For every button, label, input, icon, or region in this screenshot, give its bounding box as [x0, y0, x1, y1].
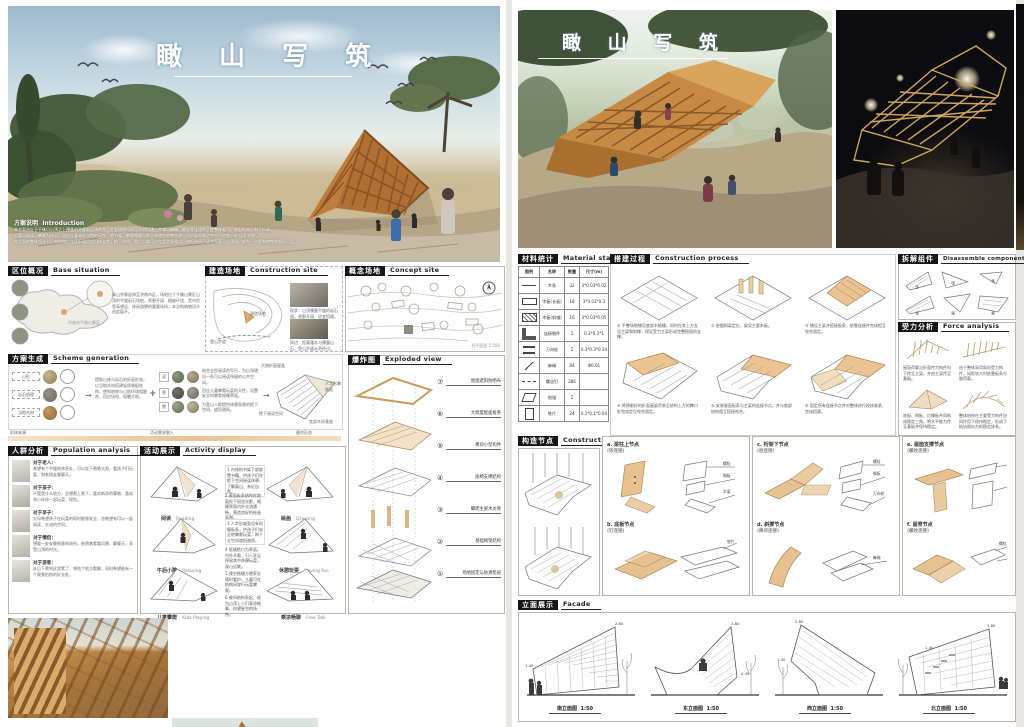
force-en: Force analysis [941, 322, 1009, 332]
need-text: 结合全民阅读的号召，为山顶增设一处可以阅读停留的公共空间。 [202, 368, 258, 385]
elevation-north: 2.801.40 [895, 617, 1011, 701]
svg-text:木梁: 木梁 [723, 489, 731, 494]
process-diagram-4 [617, 351, 701, 401]
process-header: 搭建过程 Construction process [610, 254, 895, 264]
activity-diagram-climb [147, 565, 221, 603]
final-note: 大跨折面屋盖 [261, 363, 285, 369]
activity-diagram-reading [147, 463, 221, 503]
node-zh: 构造节点 [518, 436, 558, 446]
population-text: 想要一处安静惬意的场所，依偎着看看风景、聊聊天，享受山顶的时光。 [33, 541, 134, 553]
force-text: 整体结构在主要受力构件协同作用下保持稳定，形成了抵抗侧向力的稳定体系。 [959, 413, 1009, 430]
need-tag: 读 [159, 372, 169, 382]
construction-site-en: Construction site [248, 266, 328, 276]
concept-site-en: Concept site [388, 266, 449, 276]
title-underline-right [538, 58, 728, 59]
activity-zh: 活动展示 [140, 446, 180, 456]
arrow-icon: → [263, 391, 270, 400]
svg-text:2.80: 2.80 [731, 621, 740, 626]
force-text: 由于整体采用斜向受力构件，间距较大时依靠板条分散荷载。 [959, 365, 1009, 382]
disassemble-parts [902, 268, 1012, 316]
svg-text:1.40: 1.40 [925, 645, 934, 650]
level-mark: 2.80 [615, 621, 624, 626]
force-diagram-b [959, 337, 1009, 363]
activity-diagram-fun [263, 515, 337, 555]
section-disassemble: 拆解组件 Disassemble components ① ③ ⑤ ② ④ ⑥ [898, 254, 1016, 320]
scheme-input-label: 岩石肌理 [12, 390, 40, 400]
concept-site-zh: 概念场地 [345, 266, 385, 276]
activity-label-zh: 乘凉畅聊 [281, 615, 301, 621]
part-num: ⑥ [991, 311, 995, 317]
svg-text:1.40: 1.40 [525, 663, 534, 668]
activity-note: 3 人字形坡面设有抓握板条，供孩子们安全地攀爬玩耍，跨下大空间遮阳避雨。 [225, 519, 265, 545]
node-label: d. 斜撑节点 (榫卯连接) [757, 521, 784, 534]
legend-iron-plate [525, 408, 534, 420]
map-note: 济南市千佛山景区 [68, 320, 118, 326]
force-text: 底板、侧板、后撑板共同构成稳定三角，将水平推力传至基础并保持稳定。 [903, 413, 953, 430]
arrow-icon: → [85, 391, 92, 400]
activity-diagram-talk [263, 565, 337, 603]
exploded-num: ① [437, 570, 443, 578]
population-text: 从山下爬到这里累了，想找个地方歇脚，同时希望能有一个观景拍照的好去处。 [33, 566, 134, 578]
construction-site-header: 建造场地 Construction site [205, 266, 342, 276]
poster-title-right: 瞰 山 写 筑 [562, 28, 762, 55]
need-photo [172, 387, 184, 399]
concept-plan-sketch [348, 279, 502, 345]
intro-block: 方案说明 Introduction 本方案选址于千佛山山顶之上裸露的平缓岩石场地… [14, 218, 314, 244]
scheme-sketch-circle [60, 387, 75, 402]
population-zh: 人群分析 [8, 446, 48, 456]
node-detail-box-ef: e. 屋面支撑节点 (螺栓连接) f. 屋脊节点 (螺栓连接) 螺栓 [902, 436, 1016, 596]
node-label: f. 屋脊节点 (螺栓连接) [907, 521, 933, 534]
process-step: ① 平整场地铺设底部木格栅，同时在其上方支设主梁和斜撑，保证受力主梁形成完整稳固… [617, 323, 701, 340]
col-qty: 数量 [565, 267, 580, 278]
elevation-caption: 北立面图 1:50 [923, 705, 975, 714]
process-step: ② 依据斜梁定位，架设主要木板。 [711, 323, 795, 329]
force-diagram-a [903, 337, 953, 363]
material-row: 木条323*0.03*0.02 [519, 278, 609, 294]
exploded-num: ⑥ [437, 410, 443, 418]
elevation-caption: 西立面图 1:50 [799, 705, 851, 714]
process-step: ⑤ 安装屋面板条与主梁的连接节点，并与底部结构相互搭接咬合。 [711, 403, 795, 414]
need-photo [187, 401, 199, 413]
exploded-num: ⑤ [437, 442, 443, 450]
material-row: 万向轮20.3*0.3*0.34 [519, 342, 609, 358]
intro-zh: 方案说明 [14, 220, 38, 227]
materials-header-row: 图例 名称 数量 尺寸(m) [519, 267, 609, 278]
svg-text:螺栓: 螺栓 [723, 461, 731, 466]
hero-render-day: 瞰 山 写 筑 方案说明 Introduction 本方案选址于千佛山山顶之上裸… [8, 6, 500, 262]
force-text: 屋面荷载沿折面传力构件向下传至主梁，并由主梁传至基础。 [903, 365, 953, 382]
population-text: 父母希望孩子在玩耍的同时能够安全，也希望有可以一起阅读、交流的空间。 [33, 516, 134, 528]
scheme-generation-header: 方案生成 Scheme generation [8, 354, 342, 364]
legend-screw [522, 381, 536, 382]
section-activity-display: 活动展示 Activity display 阅读 Reading [140, 446, 346, 614]
node-overview-axons [519, 449, 597, 593]
exploded-zh: 爆炸图 [348, 355, 380, 365]
process-step: ③ 铺设主梁并搭接板条，依靠连接件完成相互咬合固定。 [805, 323, 889, 334]
population-text: 不管是什么地方，总想爬上爬下，喜欢新奇的事物，喜欢和小伙伴一起玩耍、探险。 [33, 491, 134, 503]
legend-hatch-plank [522, 313, 537, 322]
facade-header: 立面展示 Facade [518, 600, 601, 610]
population-en: Population analysis [51, 446, 140, 456]
site-photo-2 [290, 319, 328, 339]
process-diagram-3 [805, 273, 889, 321]
exploded-num: ⑦ [437, 378, 443, 386]
svg-text:螺栓: 螺栓 [999, 541, 1007, 546]
material-row: 螺丝钉286 [519, 374, 609, 390]
svg-text:螺栓: 螺栓 [873, 459, 881, 464]
node-diagram-a: 螺栓 钢板 木梁 [611, 459, 741, 515]
elevation-caption: 东立面图 1:50 [675, 705, 727, 714]
activity-note: 6 夜间结构亮起，成为山顶上人们乘凉畅聊、仰望星空的场所。 [225, 595, 261, 617]
night-render-sketch [836, 10, 1014, 248]
intro-line: 本方案选址于千佛山山顶之上裸露的平缓岩石场地旁，主要结构均采用木材搭建，并辅以麻… [14, 227, 314, 233]
construction-site-zh: 建造场地 [205, 266, 245, 276]
scheme-footer-label: 最终形态 [296, 430, 312, 436]
part-num: ① [915, 285, 919, 291]
north-arrow-icon [482, 281, 496, 295]
legend-plank [522, 298, 537, 305]
activity-diagram-relaxing [147, 515, 221, 555]
material-row: 木板(长板)183*0.03*0.3 [519, 294, 609, 310]
activity-label-en: Kids Playing [182, 616, 209, 621]
interior-structure [172, 718, 318, 727]
process-step: ④ 将预制好的折面屋架吊装至结构上方的榫口处完成定位咬合固定。 [617, 403, 701, 414]
node-diagram-c: 螺栓 钢板 万向轮 [761, 459, 891, 515]
force-header: 受力分析 Force analysis [898, 322, 1015, 332]
force-diagram-c [903, 387, 953, 411]
bookshelf-face [14, 628, 66, 714]
part-num: ⑤ [991, 279, 995, 285]
scheme-generation-zh: 方案生成 [8, 354, 48, 364]
section-population-analysis: 人群分析 Population analysis 对于老人： 希望有个平缓的休息… [8, 446, 138, 614]
exploded-num: ② [437, 538, 443, 546]
legend-anchor [521, 393, 536, 402]
exploded-en: Exploded view [383, 355, 452, 365]
final-note: 底部木质基座 [309, 419, 333, 425]
scheme-sketch-circle [60, 369, 75, 384]
section-exploded-view: 爆炸图 Exploded view ⑦屋面遮阳防晒布 ⑥大跨度屋面板条 ⑤榫卯小… [348, 355, 505, 614]
need-tag: 爬 [159, 388, 169, 398]
population-text: 希望有个平缓的休息处，可以坐下晒晒太阳，看孩子们玩耍，和老朋友聊聊天。 [33, 466, 134, 478]
node-label: c. 桁架下节点 (栓连接) [757, 441, 789, 454]
process-diagram-1 [617, 273, 701, 321]
hero-render-day-right: 瞰 山 写 筑 [518, 10, 832, 248]
intro-heading: 方案说明 Introduction [14, 218, 314, 227]
population-sketch [12, 560, 30, 582]
hero-render-night [836, 10, 1014, 248]
node-diagram-e [909, 461, 1009, 513]
material-row: 木板(斜铺)163*0.03*0.05 [519, 310, 609, 326]
edge-photo-sliver [1016, 4, 1024, 250]
concept-site-header: 概念场地 Concept site [345, 266, 504, 276]
svg-text:1.40: 1.40 [777, 657, 786, 662]
node-diagram-d: 麻绳 [761, 539, 891, 591]
base-caption: 泰山余脉延伸至济南市区，场地位于千佛山景区山顶的平缓岩石场地，视野开阔、植被环绕… [112, 292, 200, 315]
materials-zh: 材料统计 [518, 254, 558, 264]
activity-note: 4 低矮檐口为界面，内外开敞，引人驻足停留其中休憩玩耍，观山远眺。 [225, 547, 261, 569]
process-step: ⑥ 固定所有连接节点并对整体进行校核收紧，完成搭建。 [805, 403, 889, 414]
legend-steel-connector [522, 328, 536, 340]
activity-note: 5 镂空格栅方便家长随时看护，儿童可在结构间穿行玩耍攀爬。 [225, 571, 261, 593]
activity-header: 活动展示 Activity display [140, 446, 345, 456]
svg-text:麻绳: 麻绳 [873, 555, 881, 560]
base-situation-en: Base situation [51, 266, 120, 276]
force-diagram-d [959, 387, 1009, 411]
exploded-label: 场地固定与防滑垫层 [446, 570, 501, 578]
need-photo [172, 401, 184, 413]
force-zh: 受力分析 [898, 322, 938, 332]
site-photo-caption-1: 现状：山顶裸露平缓的岩石面，视野开阔、适宜搭建。 [290, 308, 338, 320]
section-base-situation: 区位概况 Base situation 泰山余脉延伸至济南市区，场地位于千佛山景… [8, 266, 202, 350]
plan-label-2: 建造场地 [250, 311, 266, 317]
accent-bar [8, 436, 341, 441]
population-sketch [12, 535, 30, 557]
exploded-header: 爆炸图 Exploded view [348, 355, 504, 365]
plan-label-1: 登山步道 [210, 339, 226, 345]
base-situation-header: 区位概况 Base situation [8, 266, 202, 276]
elevation-caption: 南立面图 1:50 [549, 705, 601, 714]
facade-en: Facade [561, 600, 601, 610]
need-text: 回应儿童攀爬玩耍的天性，设置安全的攀爬格栅界面。 [202, 388, 258, 400]
scheme-input-label: 山形 [12, 372, 40, 382]
part-num: ④ [951, 311, 955, 317]
exploded-label: 榫卯小型构件 [446, 442, 501, 450]
activity-label: 乘凉畅聊 Free Talk [281, 604, 326, 623]
exploded-label: 屋面遮阳防晒布 [446, 378, 501, 386]
scheme-need-rows: 读 结合全民阅读的号召，为山顶增设一处可以阅读停留的公共空间。 爬 回应儿童攀爬… [159, 368, 258, 413]
presentation-board: 瞰 山 写 筑 方案说明 Introduction 本方案选址于千佛山山顶之上裸… [0, 0, 1024, 727]
col-legend: 图例 [519, 267, 540, 278]
section-concept-site: 概念场地 Concept site [345, 266, 505, 352]
elevation-east: 2.800.45 [647, 617, 763, 701]
poster-title-left: 瞰 山 写 筑 [156, 36, 376, 73]
activity-en: Activity display [183, 446, 256, 456]
exploded-num: ③ [437, 506, 443, 514]
scheme-photo-circle [43, 406, 57, 420]
process-en: Construction process [653, 254, 749, 264]
population-sketch [12, 485, 30, 507]
legend-wood-strip [522, 285, 536, 286]
need-tag: 憩 [159, 402, 169, 412]
scheme-sketch-circle [60, 405, 75, 420]
process-diagram-2 [711, 273, 795, 321]
exploded-label: 基础网架结构 [446, 538, 501, 546]
node-detail-box-cd: c. 桁架下节点 (栓连接) 螺栓 钢板 万向轮 d. 斜撑节点 (榫卯连接) [752, 436, 900, 596]
legend-rope [523, 362, 535, 370]
right-poster: 瞰 山 写 筑 [512, 0, 1016, 727]
facade-header-wrap: 立面展示 Facade [518, 600, 601, 610]
node-label: b. 底板节点 (钉连接) [607, 521, 634, 534]
node-overview-box [518, 448, 600, 596]
svg-text:垫片: 垫片 [727, 539, 735, 544]
material-row: 麻绳84Φ0.01 [519, 358, 609, 374]
material-row: 铁片240.1*0.1*0.04 [519, 406, 609, 422]
svg-text:钢板: 钢板 [873, 471, 881, 476]
population-sketch [12, 510, 30, 532]
process-diagram-5 [711, 351, 795, 401]
left-poster: 瞰 山 写 筑 方案说明 Introduction 本方案选址于千佛山山顶之上裸… [0, 0, 506, 727]
materials-table: 图例 名称 数量 尺寸(m) 木条323*0.03*0.02 木板(长板)183… [518, 266, 609, 422]
node-detail-box-ab: a. 梁柱上节点 (铰连接) 螺栓 钢板 木梁 b. 底板节点 (钉连接) [602, 436, 750, 596]
section-construction-process: 搭建过程 Construction process ① 平整场地铺设底部木格栅，… [610, 254, 896, 436]
scheme-photo-circle [43, 370, 57, 384]
elevation-west: 2.801.40 [771, 617, 887, 701]
col-size: 尺寸(m) [580, 267, 609, 278]
part-num: ② [915, 311, 919, 317]
svg-text:万向轮: 万向轮 [873, 491, 885, 496]
exploded-label: 攀爬主梁木龙骨 [446, 506, 501, 514]
section-force-analysis: 受力分析 Force analysis 屋面荷载沿折面传力构件向下传至主梁，并由… [898, 322, 1016, 436]
location-map [8, 278, 118, 346]
exploded-labels: ⑦屋面遮阳防晒布 ⑥大跨度屋面板条 ⑤榫卯小型构件 ④座椅支撑结构 ③攀爬主梁木… [437, 378, 501, 578]
scheme-footer-label: 活动需求融入 [150, 430, 174, 436]
node-diagram-b: 垫片 [611, 539, 741, 591]
col-name: 名称 [540, 267, 565, 278]
activity-note: 2 屋面板条结构在地面投下斑驳光影，格栅界面内外交流通畅，营造良好的绘画氛围。 [225, 493, 261, 521]
detail-photo-interior [172, 718, 318, 727]
legend-caster [523, 346, 535, 354]
detail-photo-bookshelf [8, 618, 168, 718]
part-num: ③ [951, 281, 955, 287]
scheme-photo-circle [43, 388, 57, 402]
exploded-label: 座椅支撑结构 [446, 474, 501, 482]
scheme-inputs: 山形 岩石肌理 当地木材 [12, 369, 75, 420]
plus-icon: + [149, 389, 157, 399]
need-photo [187, 387, 199, 399]
exploded-axon [353, 370, 435, 608]
scheme-input-label: 当地木材 [12, 408, 40, 418]
scheme-mid-text: 提取山体与岩石的折面形态，以当地木材搭建轻质装配结构，使构筑物与山地环境相融合，… [95, 377, 147, 400]
activity-label-en: Free Talk [306, 616, 326, 621]
svg-text:钢板: 钢板 [723, 473, 731, 478]
population-header: 人群分析 Population analysis [8, 446, 137, 456]
node-label: e. 屋面支撑节点 (螺栓连接) [907, 441, 944, 454]
disassemble-en: Disassemble components [941, 256, 1024, 264]
population-sketch [12, 460, 30, 482]
concept-scale-note: 总平面图 1:500 [471, 343, 500, 349]
activity-diagram-drawing [263, 463, 337, 503]
disassemble-header: 拆解组件 Disassemble components [898, 254, 1015, 264]
intro-en: Introduction [42, 220, 84, 227]
exploded-label: 大跨度屋面板条 [446, 410, 501, 418]
site-photo-caption-2: 周边：低矮灌木与裸露山石，登山步道从旁经过。 [290, 340, 338, 352]
intro-line: 在方案的整体设计上，构筑物以连续折面回应山体走势，檐下内凹，登山人群可以在此驻留… [14, 239, 314, 245]
final-note: 檐下阅读空间 [259, 411, 283, 417]
disassemble-zh: 拆解组件 [898, 254, 938, 264]
process-diagram-6 [805, 351, 889, 401]
title-underline [174, 76, 352, 77]
facade-zh: 立面展示 [518, 600, 558, 610]
need-photo [187, 371, 199, 383]
elevation-south: 2.80 1.40 [523, 617, 639, 701]
section-construction-site: 建造场地 Construction site 登山步道 建造场地 现状：山顶裸露… [205, 266, 343, 352]
material-row: 地锚2 [519, 390, 609, 406]
exploded-num: ④ [437, 474, 443, 482]
site-photo-1 [290, 283, 328, 307]
population-groups: 对于老人： 希望有个平缓的休息处，可以坐下晒晒太阳，看孩子们玩耍，和老朋友聊聊天… [12, 460, 134, 582]
svg-text:2.80: 2.80 [795, 619, 804, 624]
final-note: 人字形攀爬面 [325, 381, 341, 393]
section-scheme-generation: 方案生成 Scheme generation 山形 岩石肌理 当地木材 [8, 354, 343, 430]
scheme-footer-label: 形体来源 [10, 430, 26, 436]
base-situation-zh: 区位概况 [8, 266, 48, 276]
svg-text:2.80: 2.80 [987, 623, 996, 628]
facade-box: 2.80 1.40 南立面图 1:50 2.800.45 东立面图 1:50 [518, 612, 1016, 722]
process-zh: 搭建过程 [610, 254, 650, 264]
need-text: 为登山人群提供休憩观景的檐下空间，遮阳避雨。 [202, 402, 258, 414]
site-plan [210, 281, 286, 347]
node-diagram-f: 螺栓 [909, 539, 1009, 589]
material-row: 连接钢件10.3*0.3*1 [519, 326, 609, 342]
need-photo [172, 371, 184, 383]
scheme-generation-en: Scheme generation [51, 354, 139, 364]
node-label: a. 梁柱上节点 (铰连接) [607, 441, 639, 454]
